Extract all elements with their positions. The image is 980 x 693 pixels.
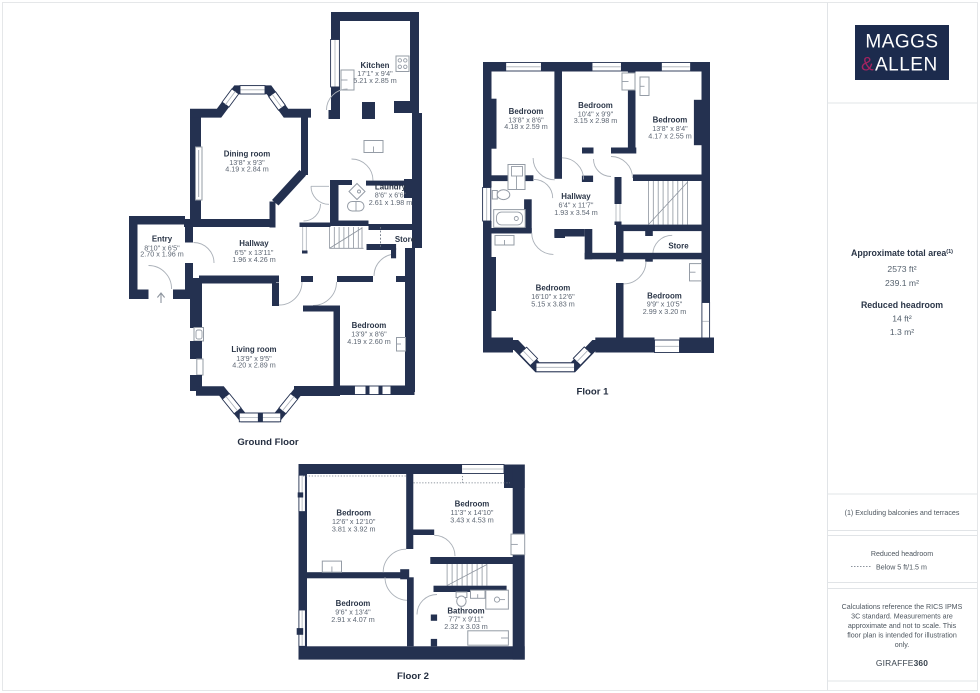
svg-text:239.1 m²: 239.1 m² bbox=[885, 278, 919, 288]
svg-text:floor plan is intended for ill: floor plan is intended for illustration bbox=[847, 632, 957, 640]
svg-text:Hallway: Hallway bbox=[239, 239, 269, 248]
svg-text:&: & bbox=[861, 55, 874, 76]
svg-text:Store: Store bbox=[395, 235, 416, 244]
svg-text:3C standard. Measurements are: 3C standard. Measurements are bbox=[851, 613, 953, 621]
svg-text:5.21 x 2.85 m: 5.21 x 2.85 m bbox=[353, 76, 397, 85]
svg-text:14 ft²: 14 ft² bbox=[892, 314, 912, 324]
svg-text:3.43 x 4.53 m: 3.43 x 4.53 m bbox=[450, 516, 494, 525]
svg-text:1.96 x 4.26 m: 1.96 x 4.26 m bbox=[232, 255, 276, 264]
svg-text:3.81 x 3.92 m: 3.81 x 3.92 m bbox=[332, 525, 376, 534]
svg-text:5.15 x 3.83 m: 5.15 x 3.83 m bbox=[531, 300, 575, 309]
svg-text:2.70 x 1.96 m: 2.70 x 1.96 m bbox=[140, 250, 184, 259]
svg-text:Reduced headroom: Reduced headroom bbox=[861, 300, 943, 310]
svg-text:Calculations reference the RIC: Calculations reference the RICS IPMS bbox=[842, 603, 963, 611]
svg-text:(1) Excluding balconies and te: (1) Excluding balconies and terraces bbox=[845, 509, 960, 517]
svg-text:Reduced headroom: Reduced headroom bbox=[871, 550, 933, 558]
svg-text:2.61 x 1.98 m: 2.61 x 1.98 m bbox=[369, 198, 413, 207]
svg-text:Store: Store bbox=[668, 242, 689, 251]
svg-text:1.3 m²: 1.3 m² bbox=[890, 327, 914, 337]
svg-text:GIRAFFE360: GIRAFFE360 bbox=[876, 658, 928, 668]
svg-text:Floor 2: Floor 2 bbox=[397, 671, 429, 682]
svg-text:4.20 x 2.89 m: 4.20 x 2.89 m bbox=[232, 361, 276, 370]
svg-text:1.93 x 3.54 m: 1.93 x 3.54 m bbox=[554, 208, 598, 217]
svg-text:Ground Floor: Ground Floor bbox=[237, 437, 299, 448]
svg-text:Below 5 ft/1.5 m: Below 5 ft/1.5 m bbox=[876, 564, 927, 572]
svg-text:3.15 x 2.98 m: 3.15 x 2.98 m bbox=[574, 116, 618, 125]
svg-text:Approximate total area(1): Approximate total area(1) bbox=[851, 248, 953, 258]
svg-text:2.32 x 3.03 m: 2.32 x 3.03 m bbox=[444, 622, 488, 631]
svg-text:only.: only. bbox=[895, 641, 909, 649]
svg-text:4.17 x 2.55 m: 4.17 x 2.55 m bbox=[648, 132, 692, 141]
svg-text:2.99 x 3.20 m: 2.99 x 3.20 m bbox=[643, 307, 687, 316]
svg-text:Entry: Entry bbox=[152, 235, 173, 244]
svg-text:Floor 1: Floor 1 bbox=[577, 387, 610, 398]
svg-text:4.18 x 2.59 m: 4.18 x 2.59 m bbox=[504, 122, 548, 131]
svg-text:MAGGS: MAGGS bbox=[865, 32, 938, 53]
svg-text:ALLEN: ALLEN bbox=[875, 55, 938, 76]
svg-text:2573 ft²: 2573 ft² bbox=[887, 264, 916, 274]
svg-text:approximate and not to scale.: approximate and not to scale. This bbox=[848, 622, 957, 630]
svg-text:2.91 x 4.07 m: 2.91 x 4.07 m bbox=[331, 615, 375, 624]
svg-text:Living room: Living room bbox=[231, 345, 276, 354]
svg-text:4.19 x 2.60 m: 4.19 x 2.60 m bbox=[347, 337, 391, 346]
svg-text:4.19 x 2.84 m: 4.19 x 2.84 m bbox=[225, 165, 269, 174]
